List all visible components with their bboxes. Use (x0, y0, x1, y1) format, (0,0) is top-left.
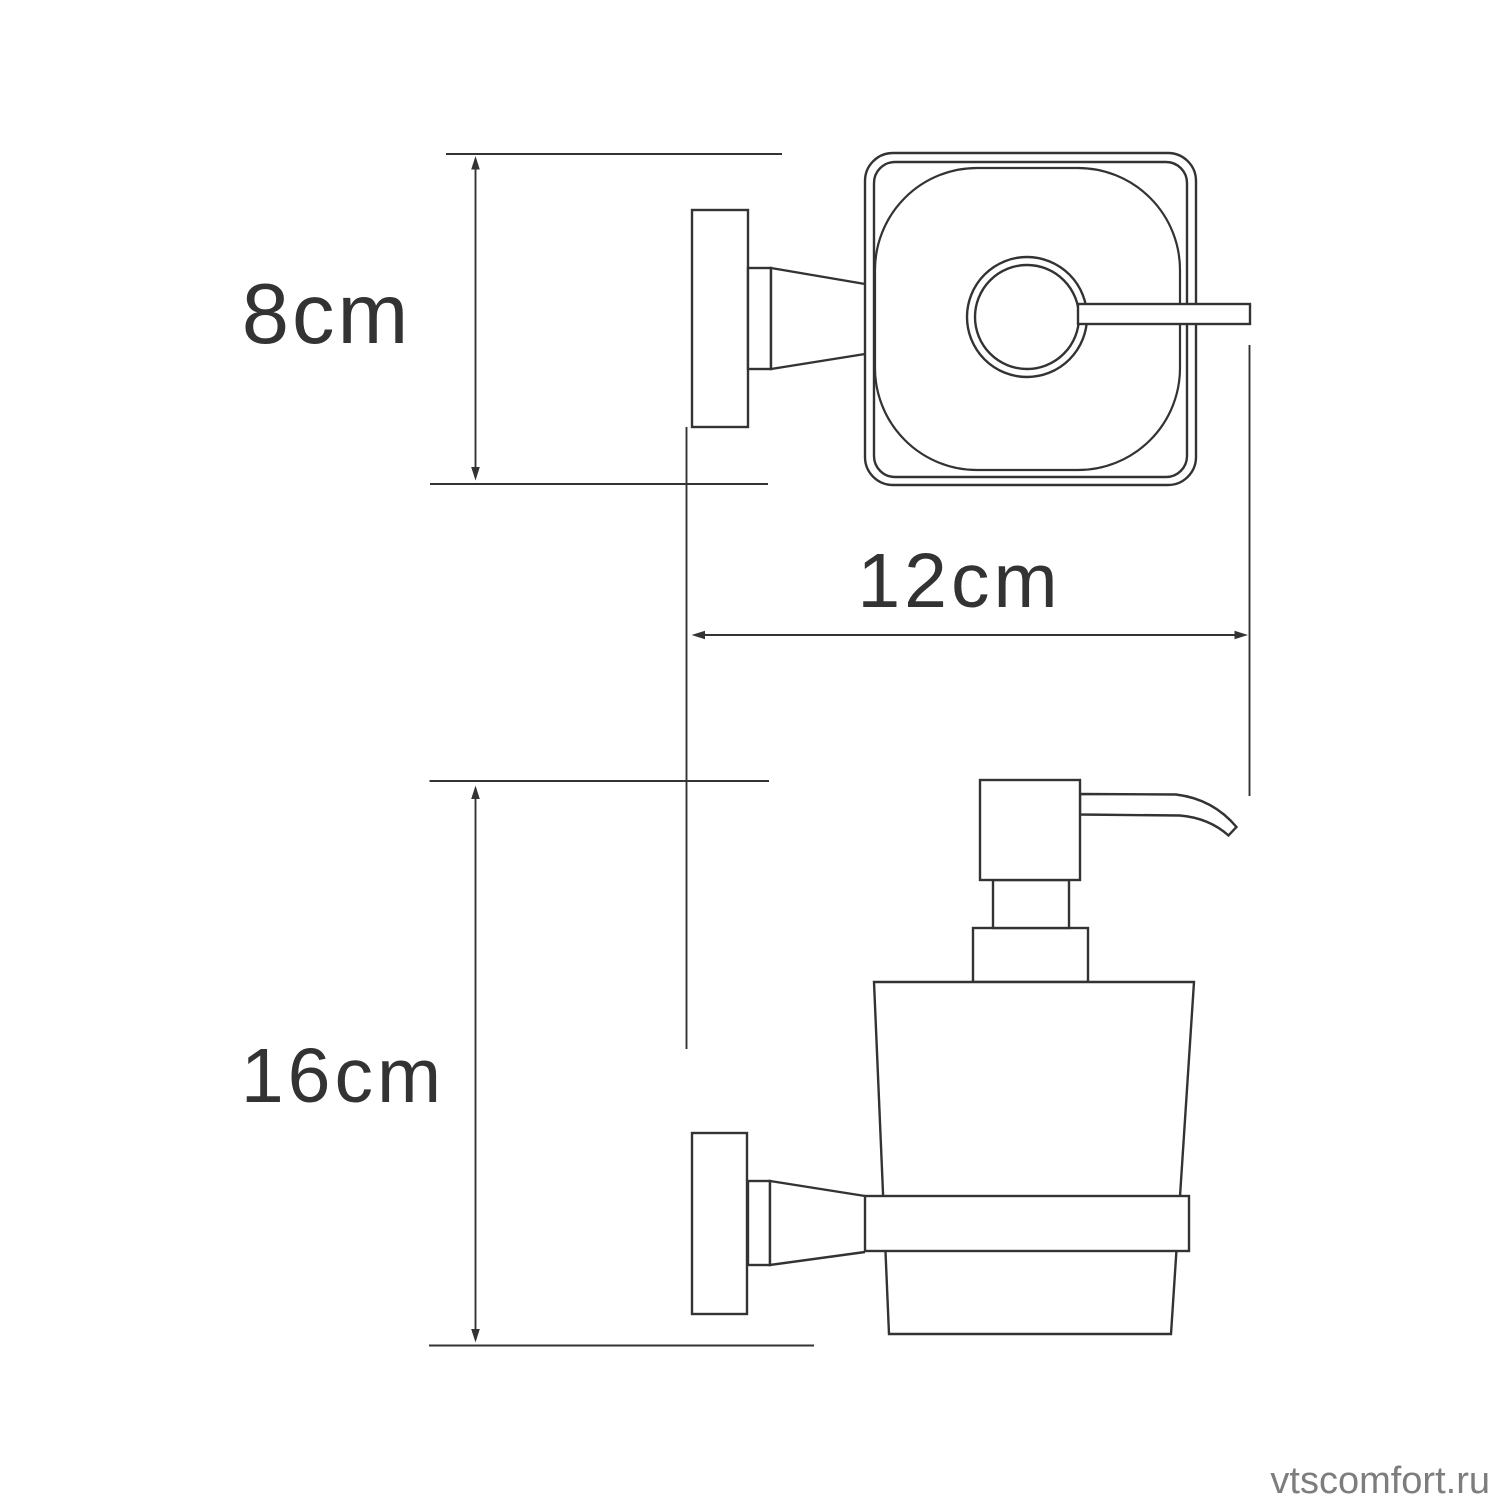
svg-text:12cm: 12cm (857, 538, 1061, 624)
svg-text:16cm: 16cm (241, 1033, 445, 1119)
svg-text:vtscomfort.ru: vtscomfort.ru (1270, 1460, 1490, 1500)
svg-text:8cm: 8cm (242, 267, 412, 362)
